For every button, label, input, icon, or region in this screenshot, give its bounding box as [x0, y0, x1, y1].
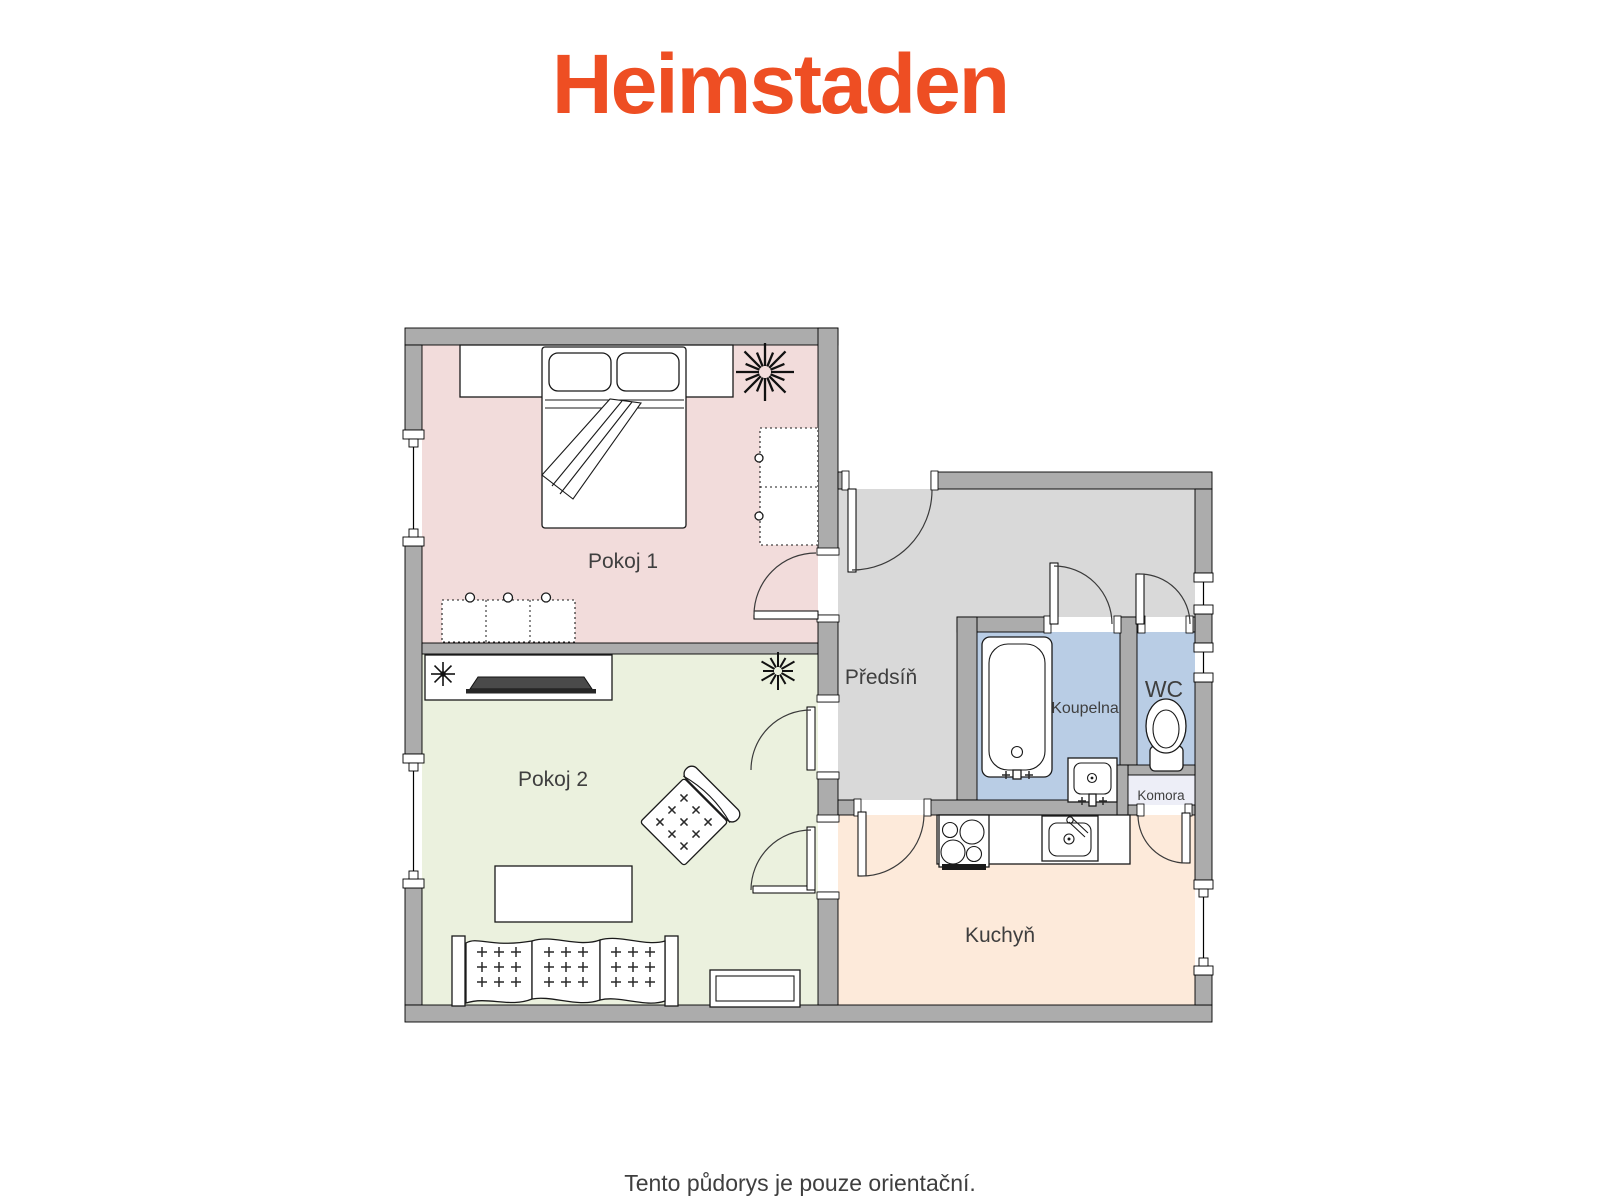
window-pokoj1 — [403, 430, 424, 546]
caption: Tento půdorys je pouze orientační. — [624, 1170, 976, 1196]
label-pokoj2: Pokoj 2 — [518, 768, 588, 791]
window-wc — [1194, 643, 1213, 682]
label-pokoj1: Pokoj 1 — [588, 550, 658, 573]
side-table — [710, 970, 800, 1007]
floorplan-image: Heimstaden — [0, 0, 1600, 1200]
wall — [957, 617, 977, 800]
window-kuchyn — [1194, 880, 1213, 975]
brand-logo: Heimstaden — [552, 37, 1008, 131]
wall — [818, 772, 838, 822]
tv — [470, 677, 592, 689]
wall — [818, 328, 838, 555]
page: Heimstaden — [0, 0, 1600, 1200]
label-wc: WC — [1145, 676, 1183, 702]
wall — [422, 643, 818, 654]
wall — [405, 888, 422, 1005]
tv-base — [466, 689, 596, 694]
wall — [1120, 617, 1137, 765]
washbasin — [1068, 758, 1117, 806]
coffee-table — [495, 866, 632, 922]
wall — [818, 615, 838, 702]
sofa — [452, 936, 678, 1006]
wardrobe-handle — [755, 512, 763, 520]
stove — [939, 815, 989, 870]
sofa-armrest — [665, 936, 678, 1006]
dresser-knob — [542, 593, 551, 602]
dresser-knob — [466, 593, 475, 602]
kitchen-fixtures — [937, 815, 1130, 870]
dresser-knob — [504, 593, 513, 602]
label-koupelna: Koupelna — [1051, 700, 1119, 717]
pillow — [549, 353, 611, 391]
sofa-armrest — [452, 936, 465, 1006]
pillow — [617, 353, 679, 391]
toilet — [1146, 699, 1186, 771]
wardrobe-handle — [755, 454, 763, 462]
dresser — [442, 593, 575, 642]
wall — [1195, 614, 1212, 643]
label-predsin: Předsíň — [845, 666, 917, 689]
wall — [405, 328, 838, 345]
wall — [931, 472, 1212, 489]
tv-cabinet — [425, 655, 612, 700]
wardrobe — [755, 428, 818, 545]
decor-scribble — [431, 662, 455, 686]
window-pokoj2 — [403, 754, 424, 888]
label-komora: Komora — [1137, 788, 1185, 803]
window-hall — [1194, 573, 1213, 614]
wall — [1195, 975, 1212, 1005]
bathtub — [982, 637, 1052, 779]
wall — [1117, 765, 1128, 815]
wall — [405, 345, 422, 430]
wall — [818, 892, 838, 1005]
wall — [405, 1005, 1212, 1022]
wall — [1195, 682, 1212, 880]
floor-plan: Pokoj 1 Pokoj 2 Předsíň Koupelna WC Komo… — [403, 328, 1213, 1022]
wall — [405, 546, 422, 754]
kitchen-sink — [1042, 816, 1098, 861]
label-kuchyn: Kuchyň — [965, 924, 1035, 947]
wall — [1195, 489, 1212, 573]
